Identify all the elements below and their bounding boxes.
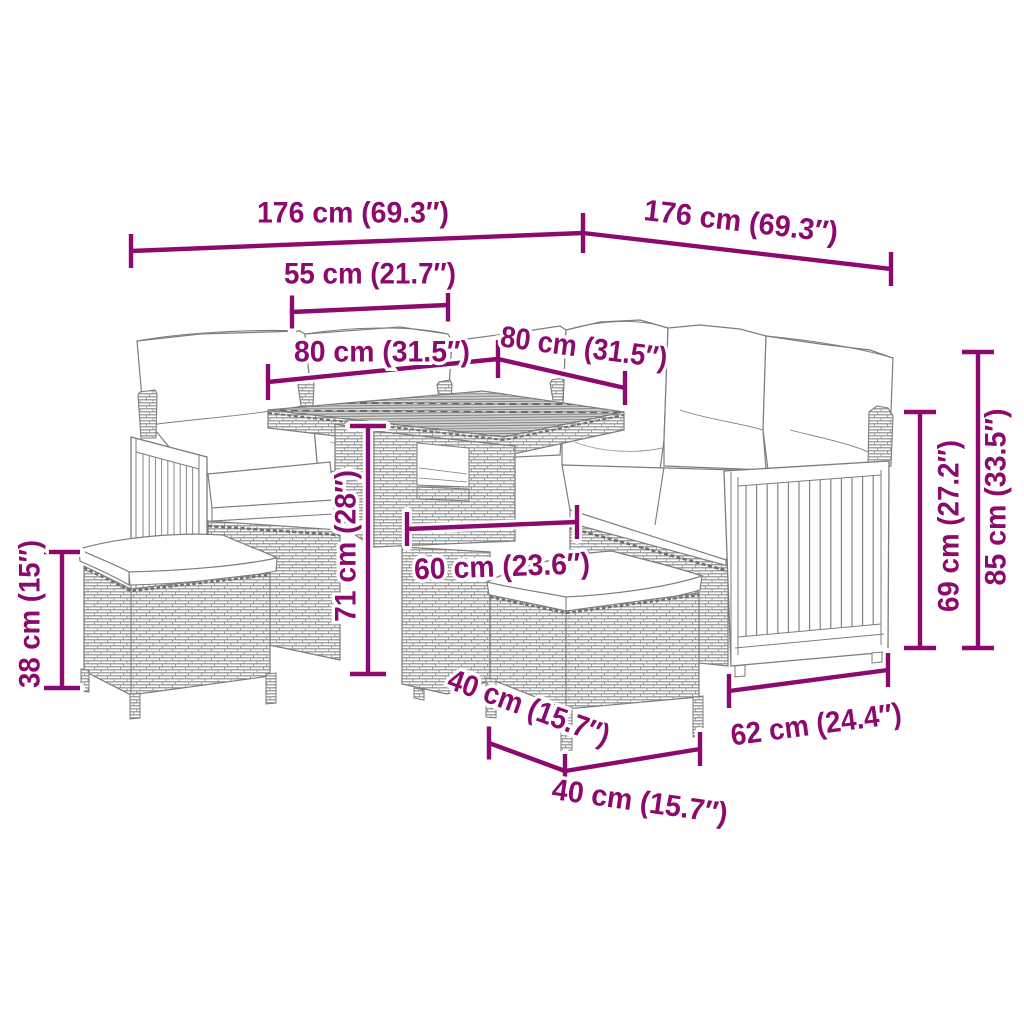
svg-text:60 cm (23.6″): 60 cm (23.6″) — [414, 547, 591, 586]
svg-text:38 cm (15″): 38 cm (15″) — [13, 540, 46, 688]
svg-text:69 cm (27.2″): 69 cm (27.2″) — [932, 440, 965, 612]
svg-text:176 cm (69.3″): 176 cm (69.3″) — [257, 196, 449, 229]
svg-text:55 cm (21.7″): 55 cm (21.7″) — [284, 257, 456, 290]
svg-text:80 cm (31.5″): 80 cm (31.5″) — [294, 335, 470, 368]
svg-text:85 cm (33.5″): 85 cm (33.5″) — [979, 409, 1012, 586]
svg-text:71 cm (28″): 71 cm (28″) — [329, 470, 362, 622]
